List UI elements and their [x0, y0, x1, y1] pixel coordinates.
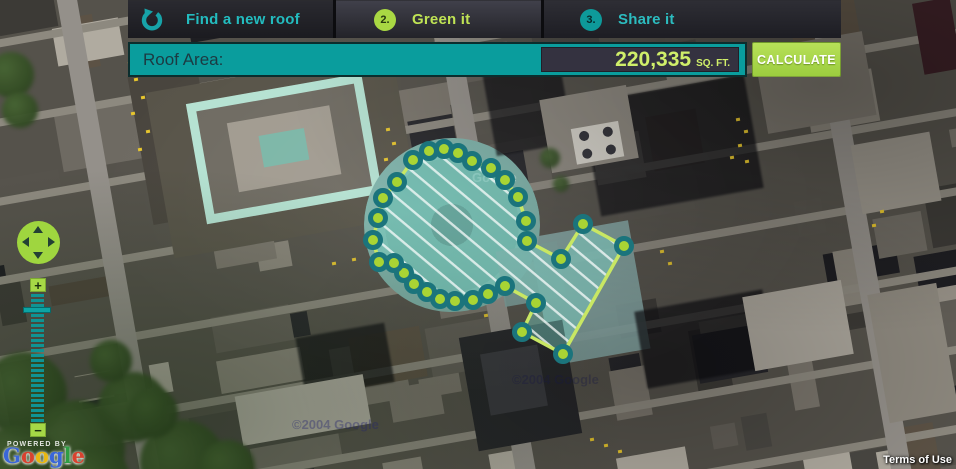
zoom-slider-track[interactable]	[31, 294, 44, 422]
reset-icon	[140, 8, 164, 32]
green-roof-app: Google ©2004 Google ©2004 Google Find a …	[0, 0, 956, 469]
polygon-vertex[interactable]	[466, 293, 481, 308]
polygon-vertex[interactable]	[484, 161, 499, 176]
roof-area-unit: SQ. FT.	[696, 58, 730, 69]
polygon-vertex[interactable]	[511, 190, 526, 205]
polygon-vertex[interactable]	[498, 279, 513, 294]
polygon-vertex[interactable]	[617, 239, 632, 254]
google-logo-letter: e	[72, 443, 85, 468]
polygon-vertex[interactable]	[515, 325, 530, 340]
tab-share-it[interactable]: 3. Share it	[544, 0, 841, 38]
map-pan-control[interactable]	[17, 221, 60, 264]
polygon-vertex[interactable]	[366, 233, 381, 248]
tab-green-it[interactable]: 2. Green it	[336, 0, 541, 38]
zoom-out-button[interactable]: −	[30, 423, 46, 437]
google-logo-letter: o	[35, 443, 49, 468]
polygon-vertex[interactable]	[371, 211, 386, 226]
polygon-vertex[interactable]	[376, 191, 391, 206]
pan-up-icon[interactable]	[33, 226, 43, 233]
polygon-vertex[interactable]	[576, 217, 591, 232]
roof-area-value-box: 220,335 SQ. FT.	[541, 47, 739, 72]
polygon-vertex[interactable]	[406, 153, 421, 168]
step-badge-2: 2.	[374, 9, 396, 31]
google-logo-letter: o	[21, 443, 35, 468]
roof-area-value: 220,335	[615, 48, 691, 72]
polygon-vertex[interactable]	[390, 175, 405, 190]
pan-left-icon[interactable]	[22, 237, 29, 247]
tab-label: Share it	[618, 11, 675, 28]
polygon-vertex[interactable]	[529, 296, 544, 311]
polygon-vertex[interactable]	[372, 255, 387, 270]
tab-find-new-roof[interactable]: Find a new roof	[128, 0, 333, 38]
polygon-vertex[interactable]	[498, 173, 513, 188]
google-logo-letter: l	[64, 443, 72, 468]
polygon-vertex[interactable]	[554, 252, 569, 267]
polygon-vertex[interactable]	[465, 154, 480, 169]
zoom-in-button[interactable]: +	[30, 278, 46, 292]
google-logo-letter: G	[3, 443, 21, 468]
google-logo-letter: g	[49, 443, 64, 468]
terms-of-use-link[interactable]: Terms of Use	[883, 454, 952, 466]
polygon-vertex[interactable]	[520, 234, 535, 249]
polygon-vertex[interactable]	[556, 347, 571, 362]
calculate-button[interactable]: CALCULATE	[752, 42, 841, 77]
pan-right-icon[interactable]	[48, 237, 55, 247]
step-tabs: Find a new roof 2. Green it 3. Share it	[128, 0, 841, 38]
pan-down-icon[interactable]	[33, 252, 43, 259]
zoom-slider-handle[interactable]	[23, 307, 51, 313]
polygon-vertex[interactable]	[519, 214, 534, 229]
google-logo: Google	[3, 445, 85, 466]
roof-area-bar: Roof Area: 220,335 SQ. FT.	[128, 42, 747, 77]
tab-label: Find a new roof	[186, 11, 300, 28]
roof-area-label: Roof Area:	[143, 50, 223, 70]
tab-label: Green it	[412, 11, 470, 28]
step-badge-3: 3.	[580, 9, 602, 31]
